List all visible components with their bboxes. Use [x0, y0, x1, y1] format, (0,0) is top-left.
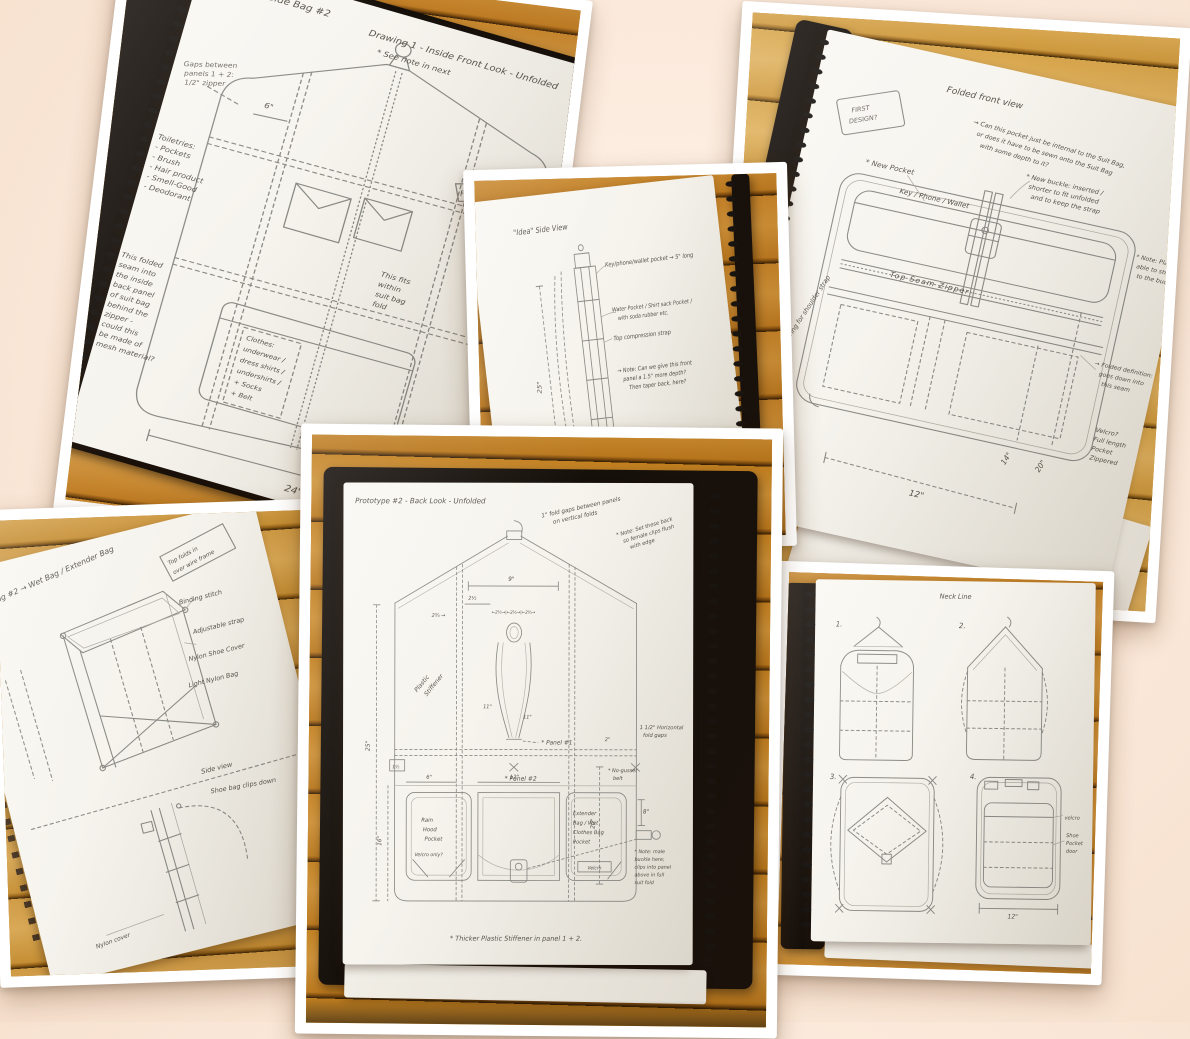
annotation: Clothes Bag	[573, 830, 605, 836]
dimension: 11"	[483, 704, 492, 710]
dimension: ←2½→|←2½→|←2¾→	[492, 609, 536, 614]
pencil-drawing	[839, 617, 914, 761]
clip-tag: 1½	[392, 763, 400, 770]
notebook: Neck Line 1.	[781, 579, 1096, 953]
annotation: Adjustable strap	[191, 615, 245, 636]
sketch-page-prototype2: Prototype #2 - Back Look - Unfolded 1" f…	[343, 482, 694, 965]
dimension: 25"	[536, 381, 544, 393]
pencil-drawing	[373, 520, 661, 901]
annotation: this seam	[1100, 382, 1130, 394]
annotation: Side view	[200, 760, 233, 776]
annotation: * New Pocket	[865, 157, 916, 177]
annotation: Key/phone/wallet pocket → 5" long	[605, 252, 694, 269]
dimension: 12"	[908, 489, 925, 502]
dimension: 14"	[999, 451, 1014, 466]
annotation: Pocket	[425, 837, 444, 843]
dimension: 20"	[591, 818, 597, 829]
annotation: door	[1066, 849, 1078, 855]
annotation: Top compression strap	[613, 330, 671, 343]
annotation: Extender	[573, 811, 597, 817]
annotation: * Panel #1	[541, 740, 572, 746]
footer-note: * Thicker Plastic Stiffener in panel 1 +…	[450, 934, 582, 942]
annotation: belt	[613, 776, 624, 782]
neck-line-sketches: Neck Line 1.	[811, 579, 1096, 945]
photo-surface: Neck Line 1.	[777, 572, 1103, 974]
velcro-tag: Velcro	[588, 865, 602, 871]
photo-neck-line-studies: Neck Line 1.	[766, 561, 1115, 985]
dimension: 16"	[377, 835, 383, 845]
annotation: fold	[371, 299, 388, 311]
annotation: buckle here;	[634, 857, 664, 863]
page-title: Folded front view	[946, 85, 1025, 112]
annotation: above in full	[634, 872, 664, 878]
page-title: Prototype #2 - Back Look - Unfolded	[355, 496, 486, 505]
dimension: 11"	[523, 715, 532, 721]
photo-surface: Prototype #2 - Back Look - Unfolded 1" f…	[306, 435, 772, 1028]
page-header: Neck Line	[940, 592, 972, 601]
annotation: Pocket	[1066, 841, 1084, 847]
annotation: * Note: male	[635, 849, 666, 855]
annotation: Shoe	[1066, 833, 1079, 839]
annotation: Binding stitch	[178, 588, 223, 606]
dimension: 12"	[510, 775, 520, 781]
dimension: 20"	[1033, 458, 1048, 473]
dimension: 8"	[643, 809, 650, 815]
pencil-drawing	[0, 569, 332, 961]
dimension: 2½	[468, 595, 476, 602]
page-title: Side Bag #2	[267, 0, 332, 20]
dimension: 6"	[263, 101, 274, 112]
back-look-sketch: Prototype #2 - Back Look - Unfolded 1" f…	[343, 482, 694, 965]
annotation: Rain	[421, 818, 433, 824]
floor-shadow	[306, 997, 766, 1028]
sketch-number: 3.	[830, 772, 837, 781]
stamp-text: FIRST	[851, 104, 872, 115]
photo-prototype2-back: Prototype #2 - Back Look - Unfolded 1" f…	[295, 423, 783, 1038]
annotation: Pocket	[573, 839, 591, 845]
sketch-number: 4.	[970, 772, 977, 781]
dimension: 6"	[426, 775, 432, 781]
annotation: Light Nylon Bag	[188, 669, 239, 689]
photo-collage: Side Bag #2 Drawing 1 - Inside Front Loo…	[0, 0, 1190, 1022]
annotation: Shoe bag clips down	[210, 776, 277, 795]
annotation: 1/2" zipper	[184, 78, 226, 88]
pencil-drawing	[975, 777, 1065, 914]
stamp-text: DESIGN?	[848, 113, 878, 125]
annotation: fold gaps	[643, 733, 667, 739]
annotation: Velcro only?	[415, 852, 444, 858]
annotation: Nylon cover	[95, 932, 132, 951]
annotation: clips into panel	[634, 865, 671, 871]
annotation: Nylon Shoe Cover	[188, 641, 246, 663]
photo-wet-bag: Drawing #2 → Wet Bag / Extender Bag Top …	[0, 498, 346, 988]
annotation: velcro	[1064, 815, 1079, 821]
dimension: 2"	[605, 737, 610, 743]
dimension: 25"	[366, 740, 372, 751]
annotation: Key / Phone / Wallet	[899, 187, 970, 210]
dimension: 2¾ →	[432, 613, 446, 619]
annotation: suit fold	[634, 880, 654, 886]
dimension: 9"	[508, 577, 515, 583]
annotation: Top Seam Zipper	[889, 270, 970, 296]
page-title: "Idea" Side View	[513, 222, 568, 238]
annotation: 1 1/2" Horizontal	[640, 725, 684, 731]
annotation: to the buckle	[1136, 273, 1177, 288]
annotation: * No-gusset	[608, 768, 638, 774]
sketch-page-neck-lines: Neck Line 1.	[811, 579, 1096, 945]
notebook: Prototype #2 - Back Look - Unfolded 1" f…	[318, 467, 758, 1006]
dimension: 12"	[1007, 913, 1018, 920]
pencil-drawing	[961, 616, 1049, 760]
annotation: Hood	[423, 827, 437, 833]
pencil-drawing	[830, 775, 944, 914]
sketch-number: 1.	[836, 619, 843, 628]
sketch-number: 2.	[959, 621, 966, 630]
annotation: + Belt	[230, 389, 254, 402]
photo-surface: Drawing #2 → Wet Bag / Extender Bag Top …	[0, 509, 335, 976]
annotation: Zippered	[1088, 454, 1118, 467]
